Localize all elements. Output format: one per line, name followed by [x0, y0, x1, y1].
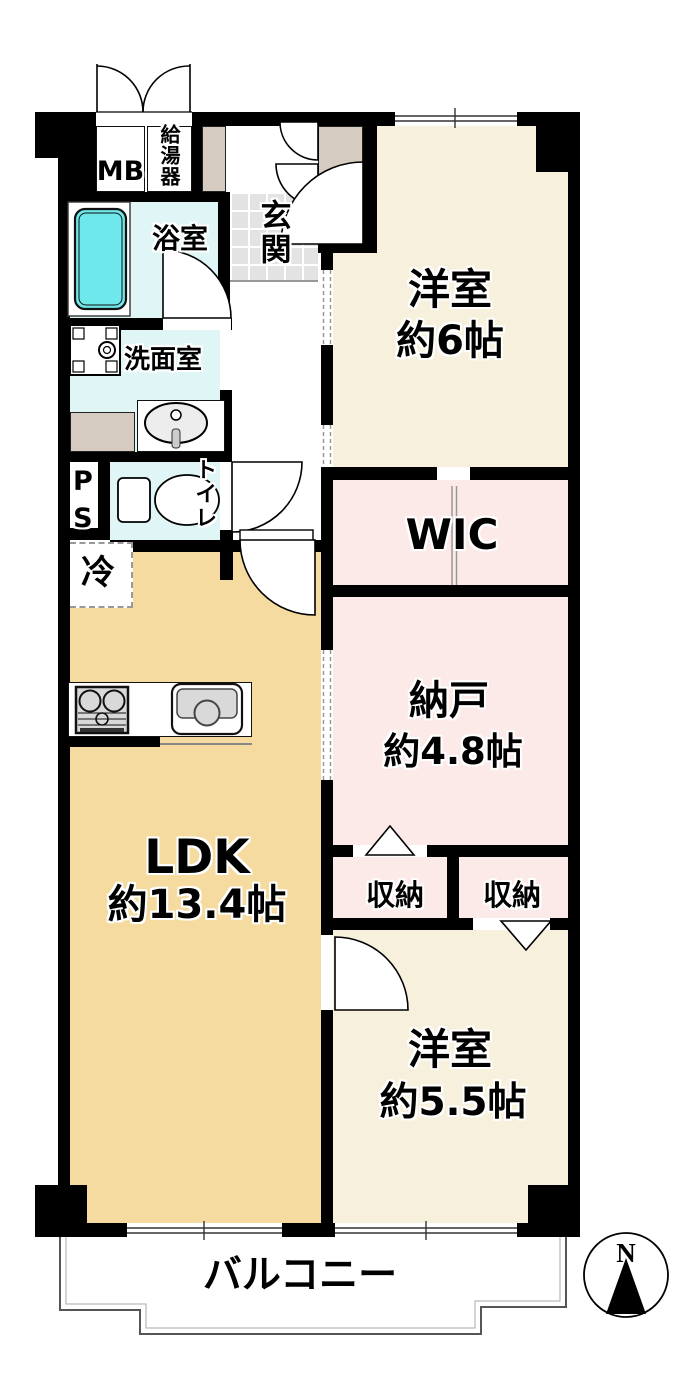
entrance-cabinet-left [202, 126, 226, 192]
compass-north-label: N [616, 1238, 636, 1268]
mb-label: MB [96, 158, 145, 186]
wall-mb-left-block [58, 126, 96, 192]
closet-b-door-opening [473, 918, 550, 930]
opening-ldk-storage [321, 650, 333, 780]
washroom-label: 洗面室 [118, 347, 208, 374]
kitchen-counter [68, 682, 252, 737]
corner-top-right [536, 112, 580, 172]
ldk-name-label: LDK [97, 833, 297, 882]
compass: N [584, 1233, 668, 1317]
opening-hall-mid [321, 425, 333, 467]
corner-bottom-left [35, 1185, 87, 1237]
wall-left [58, 112, 70, 1237]
wic-label: WIC [352, 513, 552, 557]
wall-heater-entrance [192, 112, 202, 192]
closet-b-label: 収納 [457, 880, 567, 910]
toilet-label: トイレ [192, 458, 215, 530]
storage-room-name-label: 納戸 [349, 680, 549, 722]
storage-door-opening [353, 845, 427, 857]
western55-name-label: 洋室 [350, 1028, 550, 1072]
water-heater-label: 給湯器 [158, 124, 179, 187]
washbasin-counter [137, 400, 225, 452]
wall-right [568, 112, 580, 1237]
bathroom-floor [70, 202, 218, 318]
opening-hall-western6 [321, 270, 333, 345]
wall-bathroom-right [218, 202, 230, 318]
compass-circle [584, 1233, 668, 1317]
bathroom-door-opening [163, 318, 231, 330]
wall-cabinet-right [363, 112, 377, 253]
mb-double-door-icon [96, 64, 192, 112]
western6-size-label: 約6帖 [350, 320, 550, 362]
western6-window-opening [395, 112, 517, 126]
pipe-space-label: PS [68, 466, 96, 540]
toilet-door-arc [232, 462, 302, 532]
ldk-window-opening [127, 1223, 282, 1237]
bathroom-label: 浴室 [140, 224, 220, 253]
entrance-label: 玄関 [256, 199, 289, 267]
wall-ldk-north-a [232, 540, 242, 552]
entrance-closet-door-arc-upper [280, 122, 318, 160]
refrigerator-label: 冷 [75, 556, 121, 592]
balcony-label: バルコニー [180, 1256, 420, 1297]
entrance-cabinet-right [318, 126, 363, 247]
wall-kitchen-half [68, 737, 160, 747]
wall-toilet-right [220, 530, 233, 580]
floorplan: N MB 給湯器 玄関 浴室 洗面室 PS トイレ 冷 LDK 約13.4帖 洋… [0, 0, 699, 1398]
closet-a-label: 収納 [340, 880, 450, 910]
ldk-door-leaf [240, 530, 313, 541]
wic-door-opening [437, 467, 470, 480]
western-room-55-floor [333, 930, 568, 1225]
western55-window-opening [335, 1223, 517, 1237]
western6-name-label: 洋室 [350, 268, 550, 312]
wall-ldk-north-b [311, 540, 321, 552]
washroom-cabinet [70, 412, 135, 452]
western55-size-label: 約5.5帖 [348, 1083, 558, 1124]
corner-bottom-right [528, 1185, 580, 1237]
storage-room-size-label: 約4.8帖 [353, 733, 553, 772]
ldk-size-label: 約13.4帖 [77, 884, 317, 926]
western55-door-opening [321, 935, 333, 1010]
wall-mb-bottom [58, 192, 230, 202]
wall-wic-bottom [333, 585, 580, 597]
compass-needle [606, 1258, 646, 1314]
